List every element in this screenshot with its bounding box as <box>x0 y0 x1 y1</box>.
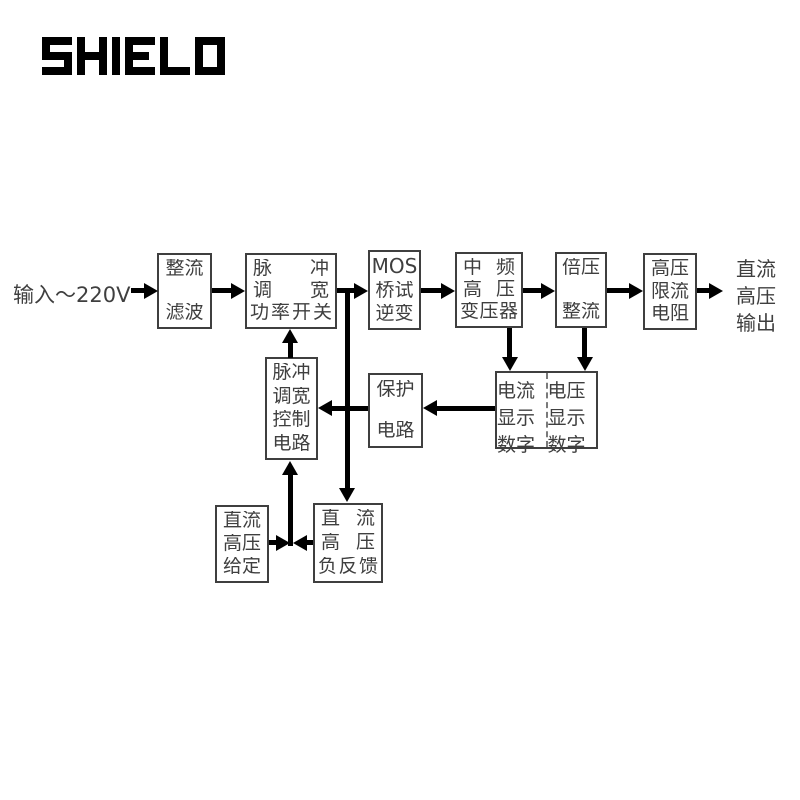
block-hv-current-limit-resistor: 高压 限流 电阻 <box>643 253 697 330</box>
text-line: 限流 <box>645 282 695 302</box>
text-line: 高 压 <box>315 533 381 553</box>
block-pwm-control-circuit: 脉冲 调宽 控制 电路 <box>265 357 318 460</box>
arrowhead-setpoint-right <box>276 535 290 551</box>
arrowhead-feedback-left <box>293 535 307 551</box>
block-current-display: 电流 显示 数字 <box>497 373 546 447</box>
logo-letter-s <box>42 37 72 75</box>
connector-transformer-to-current-display <box>507 328 512 358</box>
arrowhead-to-control-left <box>318 400 332 416</box>
text-line: 电路 <box>267 434 316 454</box>
connector-resistor-to-output <box>697 288 709 293</box>
output-label-line: 输出 <box>727 310 785 337</box>
text-line: 高压 <box>645 259 695 279</box>
arrowhead-to-feedback-down <box>339 488 355 502</box>
connector-transformer-to-doubler <box>523 288 541 293</box>
block-mos-bridge-inverter: MOS 桥试 逆变 <box>368 250 421 330</box>
arrowhead-voltage-display-down <box>577 357 593 371</box>
text-line: 中 频 <box>457 258 521 278</box>
text-line: 高 压 <box>457 280 521 300</box>
text-line: 脉冲 <box>267 363 316 383</box>
block-rectifier-filter: 整流 滤波 <box>157 253 212 329</box>
text-line: 倍压 <box>557 258 605 278</box>
text-line: 数字 <box>548 430 597 457</box>
text-line: 变压器 <box>457 302 521 322</box>
text-line: 调 宽 <box>247 281 335 301</box>
arrowhead-to-doubler-right <box>541 283 555 299</box>
connector-feedback-to-junction <box>306 540 313 545</box>
connector-junction-to-feedback <box>345 288 350 488</box>
text-line: 显示 <box>548 403 597 430</box>
connector-protection-to-control <box>332 406 368 411</box>
text-line: 滤波 <box>159 303 210 323</box>
arrowhead-to-transformer-right <box>441 283 455 299</box>
logo-letter-h <box>77 37 107 75</box>
block-dc-hv-negative-feedback: 直 流 高 压 负反馈 <box>313 503 383 583</box>
connector-doubler-to-resistor <box>607 288 629 293</box>
text-line: 电路 <box>370 421 421 441</box>
text-line: 数字 <box>497 430 546 457</box>
text-line: 给定 <box>217 557 267 577</box>
text-line: 调宽 <box>267 387 316 407</box>
connector-mos-to-transformer <box>421 288 441 293</box>
arrowhead-current-display-down <box>502 357 518 371</box>
text-line: 整流 <box>159 259 210 279</box>
text-line: 桥试 <box>370 281 419 301</box>
logo-letter-i <box>112 37 120 75</box>
block-display-group: 电流 显示 数字 电压 显示 数字 <box>495 371 598 449</box>
connector-input <box>131 288 144 293</box>
text-line: 显示 <box>497 403 546 430</box>
logo-letter-l <box>160 37 190 75</box>
block-voltage-doubler-rectifier: 倍压 整流 <box>555 252 607 328</box>
text-line: 控制 <box>267 410 316 430</box>
block-voltage-display: 电压 显示 数字 <box>546 373 597 447</box>
text-line: 电流 <box>497 376 546 403</box>
text-line: MOS <box>370 256 419 277</box>
text-line: 电压 <box>548 376 597 403</box>
arrowhead-to-output-right <box>709 283 723 299</box>
block-pwm-power-switch: 脉 冲 调 宽 功率开关 <box>245 253 337 329</box>
logo-letter-d <box>195 37 225 75</box>
input-label: 输入～220V <box>13 279 130 309</box>
output-label-line: 高压 <box>727 283 785 310</box>
arrowhead-to-pwm-up <box>282 329 298 343</box>
arrowhead-input-right <box>144 283 158 299</box>
arrowhead-to-pwm-right <box>231 283 245 299</box>
text-line: 直 流 <box>315 509 381 529</box>
connector-rectifier-to-pwm <box>212 288 231 293</box>
logo-letter-e <box>125 37 155 75</box>
text-line: 脉 冲 <box>247 259 335 279</box>
text-line: 功率开关 <box>247 303 335 323</box>
diagram-canvas: 输入～220V 直流 高压 输出 整流 滤波 脉 冲 调 宽 功率开关 MOS … <box>0 0 800 800</box>
text-line: 逆变 <box>370 304 419 324</box>
block-protection-circuit: 保护 电路 <box>368 373 423 448</box>
arrowhead-to-control-up <box>282 461 298 475</box>
block-mf-hv-transformer: 中 频 高 压 变压器 <box>455 252 523 328</box>
text-line: 保护 <box>370 380 421 400</box>
text-line: 电阻 <box>645 304 695 324</box>
arrowhead-to-protection-left <box>423 400 437 416</box>
block-dc-hv-setpoint: 直流 高压 给定 <box>215 505 269 583</box>
connector-doubler-to-voltage-display <box>582 328 587 358</box>
output-label-line: 直流 <box>727 256 785 283</box>
shield-logo <box>37 37 230 75</box>
text-line: 负反馈 <box>315 557 381 577</box>
output-label: 直流 高压 输出 <box>727 256 785 337</box>
text-line: 整流 <box>557 302 605 322</box>
text-line: 高压 <box>217 534 267 554</box>
arrowhead-to-mos-right <box>354 283 368 299</box>
text-line: 直流 <box>217 511 267 531</box>
arrowhead-to-resistor-right <box>629 283 643 299</box>
connector-control-to-pwm <box>288 342 293 358</box>
connector-display-to-protection <box>437 406 495 411</box>
